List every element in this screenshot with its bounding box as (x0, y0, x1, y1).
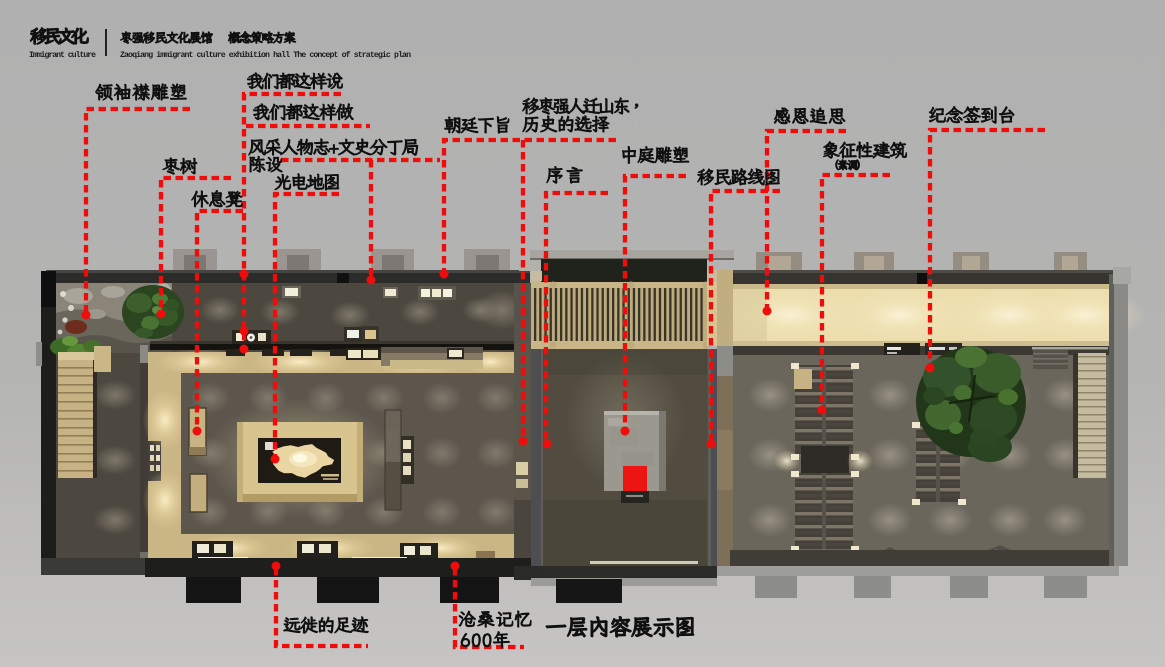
svg-text:Immigrant culture: Immigrant culture (29, 50, 96, 60)
svg-text:Zaoqiang immigrant culture exh: Zaoqiang immigrant culture exhibition ha… (120, 50, 411, 60)
